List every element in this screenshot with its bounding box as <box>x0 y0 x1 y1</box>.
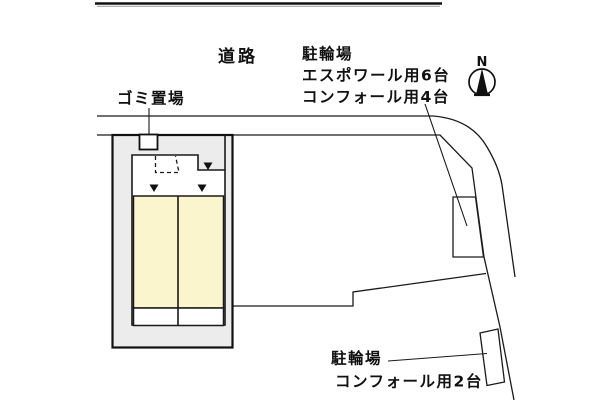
road-label: 道路 <box>218 46 258 67</box>
garbage-label: ゴミ置場 <box>117 89 185 108</box>
bike-parking-bottom-label: 駐輪場 コンフォール用2台 <box>331 349 483 391</box>
bike-bottom-comfort: コンフォール用2台 <box>335 372 483 391</box>
bike-top-heading: 駐輪場 <box>302 44 353 63</box>
bike-top-comfort: コンフォール用4台 <box>302 87 450 106</box>
bike-parking-bottom-leader <box>388 354 487 362</box>
site-plan-page: N 道路 ゴミ置場 駐輪場 エスポワール用6台 コンフォール用4台 駐輪場 コン… <box>0 0 600 400</box>
site-plan-svg: N 道路 ゴミ置場 駐輪場 エスポワール用6台 コンフォール用4台 駐輪場 コン… <box>0 0 600 400</box>
compass-north-icon: N <box>469 55 495 95</box>
compass-n-label: N <box>477 55 488 70</box>
bike-parking-top-label: 駐輪場 エスポワール用6台 コンフォール用4台 <box>302 44 450 106</box>
garbage-box <box>140 135 158 150</box>
south-plot-boundary <box>233 274 487 307</box>
bike-top-espoir: エスポワール用6台 <box>302 66 450 85</box>
top-boundary-line <box>95 4 442 7</box>
bike-parking-top-area <box>453 197 484 257</box>
bike-parking-bottom-area <box>480 329 505 386</box>
bike-bottom-heading: 駐輪場 <box>331 349 382 368</box>
